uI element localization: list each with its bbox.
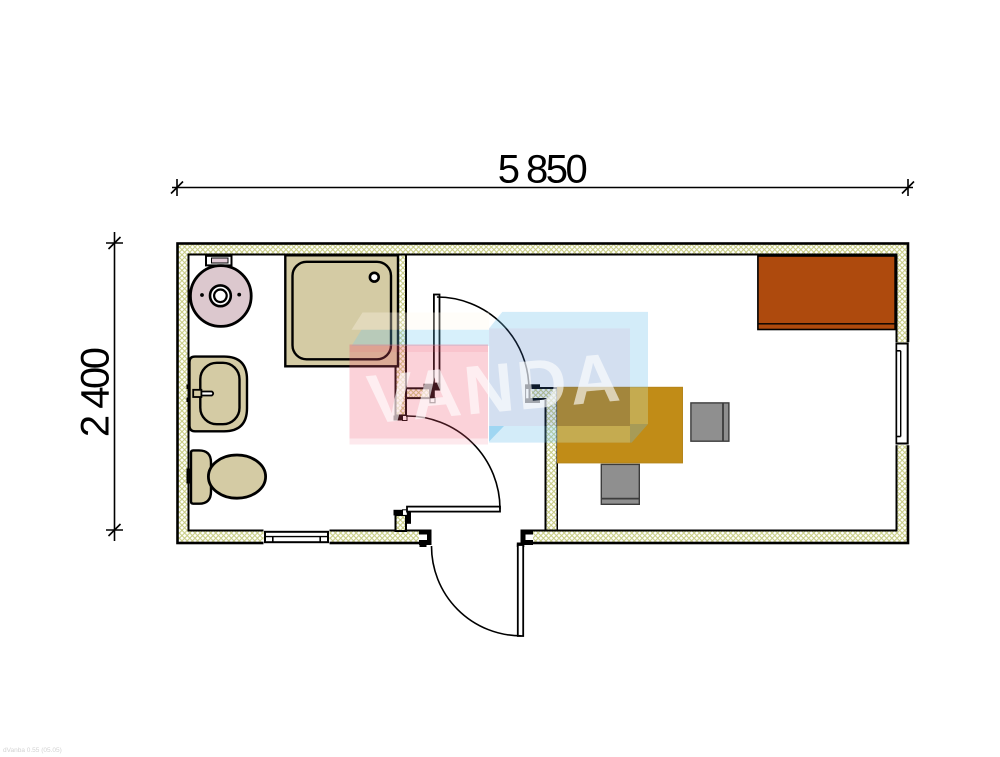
svg-text:5 850: 5 850 xyxy=(498,148,587,192)
svg-text:2 400: 2 400 xyxy=(74,348,118,437)
svg-text:dVanba 0.55 (05.05): dVanba 0.55 (05.05) xyxy=(3,747,62,754)
